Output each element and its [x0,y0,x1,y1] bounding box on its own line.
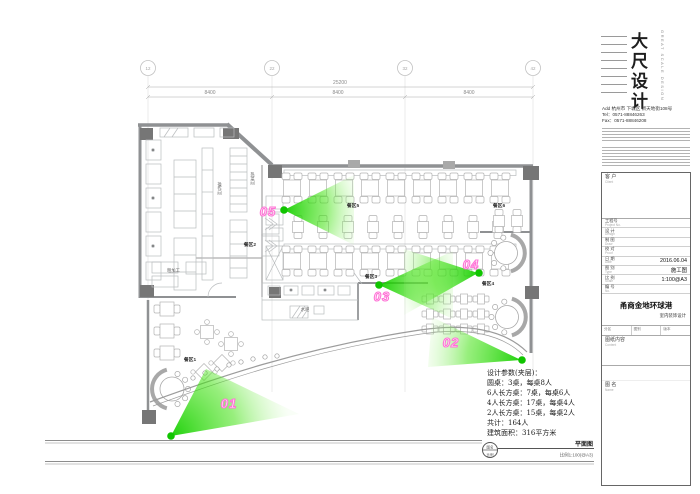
field-row: 编 号No. [602,285,690,294]
zone-label-2: 餐区2 [243,241,257,248]
field-row: 设 计Design [602,228,690,237]
grid-bubble-label: 42 [530,66,536,71]
camera-label-04: 04 [463,257,479,272]
camera-label-02: 02 [443,335,459,350]
camera-label-03: 03 [374,289,390,304]
title-block-table: 客 户 Client 工程号Project No. 设 计Design 制 图D… [601,172,691,486]
field-sub: Design [605,233,615,236]
note-line-4: 2人长方桌：15桌，每桌2人 [487,408,575,417]
field-row-scale: 比 例Scale 1:100@A3 [602,275,690,284]
legal-text-cn [602,128,690,143]
field-sub: Type [605,271,615,274]
sheet-name-sub: Name [605,389,687,392]
note-line-5: 共计：164人 [487,418,528,427]
zone-label-6: 餐区6 [492,202,506,209]
stage-col: 版本 [661,326,690,335]
callout-bottom: 比例 [487,452,495,457]
dimension-segment: 8400 [463,90,474,96]
title-block: 大尺设计 GREAT SCALE DESIGN Add 杭州市 下城区 新天地街… [598,0,698,494]
dimension-total: 25200 [333,80,347,86]
grid-bubble-label: 22 [269,66,275,71]
spacer [602,366,690,381]
content-row: 图纸内容 Content [602,336,690,366]
firm-logo-en: GREAT SCALE DESIGN [660,30,665,101]
drawing-title-callout: 图名 比例 平面图 比例1:100(@A3) [483,440,595,459]
room-label-hot-dish: 热菜间 [250,171,256,187]
firm-fax: Fax：0571-88846208 [602,118,694,124]
grid-bubble-label: 12 [145,66,151,71]
field-row-type: 图 别Type 施工图 [602,266,690,275]
stage-col: 图别 [632,326,662,335]
grid-bubbles [141,61,541,76]
field-row: 制 图Draw [602,238,690,247]
zone-label-5: 餐区5 [346,202,360,209]
zone2-booth-seats [262,214,279,256]
callout-top: 图名 [487,445,494,450]
camera-label-05: 05 [260,204,276,219]
floor-plan-sheet: 12 22 32 42 25200 8400 8400 8400 [0,0,700,494]
stage-col: 分区 [602,326,632,335]
stage-row: 分区 图别 版本 [602,326,690,336]
field-row: 校 对Proof [602,247,690,256]
field-sub: No. [605,290,615,293]
type-value: 施工图 [671,266,687,274]
design-notes: 设计参数(夹层)： 圆桌：3桌，每桌8人 6人长方桌：7桌，每桌6人 4人长方桌… [487,368,575,437]
field-row: 工程号Project No. [602,219,690,228]
note-line-2: 6人长方桌：7桌，每桌6人 [487,388,570,397]
project-name-block: 甬商金地环球港 室内装饰设计 [602,294,690,326]
room-label-prep: 粗加工 [167,267,181,274]
legal-text-en [602,147,690,168]
project-subtitle: 室内装饰设计 [602,313,690,319]
client-row: 客 户 Client [602,173,690,219]
content-sub: Content [605,344,687,347]
zone6-tables [494,210,523,233]
note-line-6: 建筑面积：316平方米 [487,428,556,437]
note-line-0: 设计参数(夹层)： [487,368,541,377]
drawing-title-scale: 比例1:100(@A3) [560,452,594,459]
firm-address-block: Add 杭州市 下城区 新天地街108号 Tel：0571-88846263 F… [602,106,694,124]
dimension-segment: 8400 [204,90,215,96]
sheet-name-row: 图 名 Name [602,381,690,441]
dimension-segment: 8400 [332,90,343,96]
field-sub: Project No. [605,224,621,227]
note-line-1: 圆桌：3桌，每桌8人 [487,378,552,387]
drawing-title-name: 平面图 [575,440,593,448]
field-sub: Proof [605,252,615,255]
logo-comb-lines [601,36,627,100]
floor-plan-drawing: 12 22 32 42 25200 8400 8400 8400 [0,0,600,494]
room-label-work: 操作间 [217,181,223,197]
scale-value: 1:100@A3 [661,277,687,283]
note-line-3: 4人长方桌：17桌，每桌4人 [487,398,575,407]
zone-label-1: 餐区1 [183,356,197,363]
bar-counter [262,270,362,320]
camera-label-01: 01 [221,396,237,411]
date-value: 2016.06.04 [660,258,687,264]
firm-logo: 大尺设计 [625,32,650,112]
field-row-date: 日 期Date 2016.06.04 [602,257,690,266]
zone-label-3: 餐区3 [364,273,378,280]
grid-bubble-label: 32 [402,66,408,71]
room-label-bar: 水吧 [301,306,310,312]
field-sub: Scale [605,280,615,283]
zone-label-4: 餐区4 [481,280,495,287]
client-sub: Client [605,181,687,184]
project-name: 甬商金地环球港 [602,300,690,311]
street-lines [45,441,594,465]
